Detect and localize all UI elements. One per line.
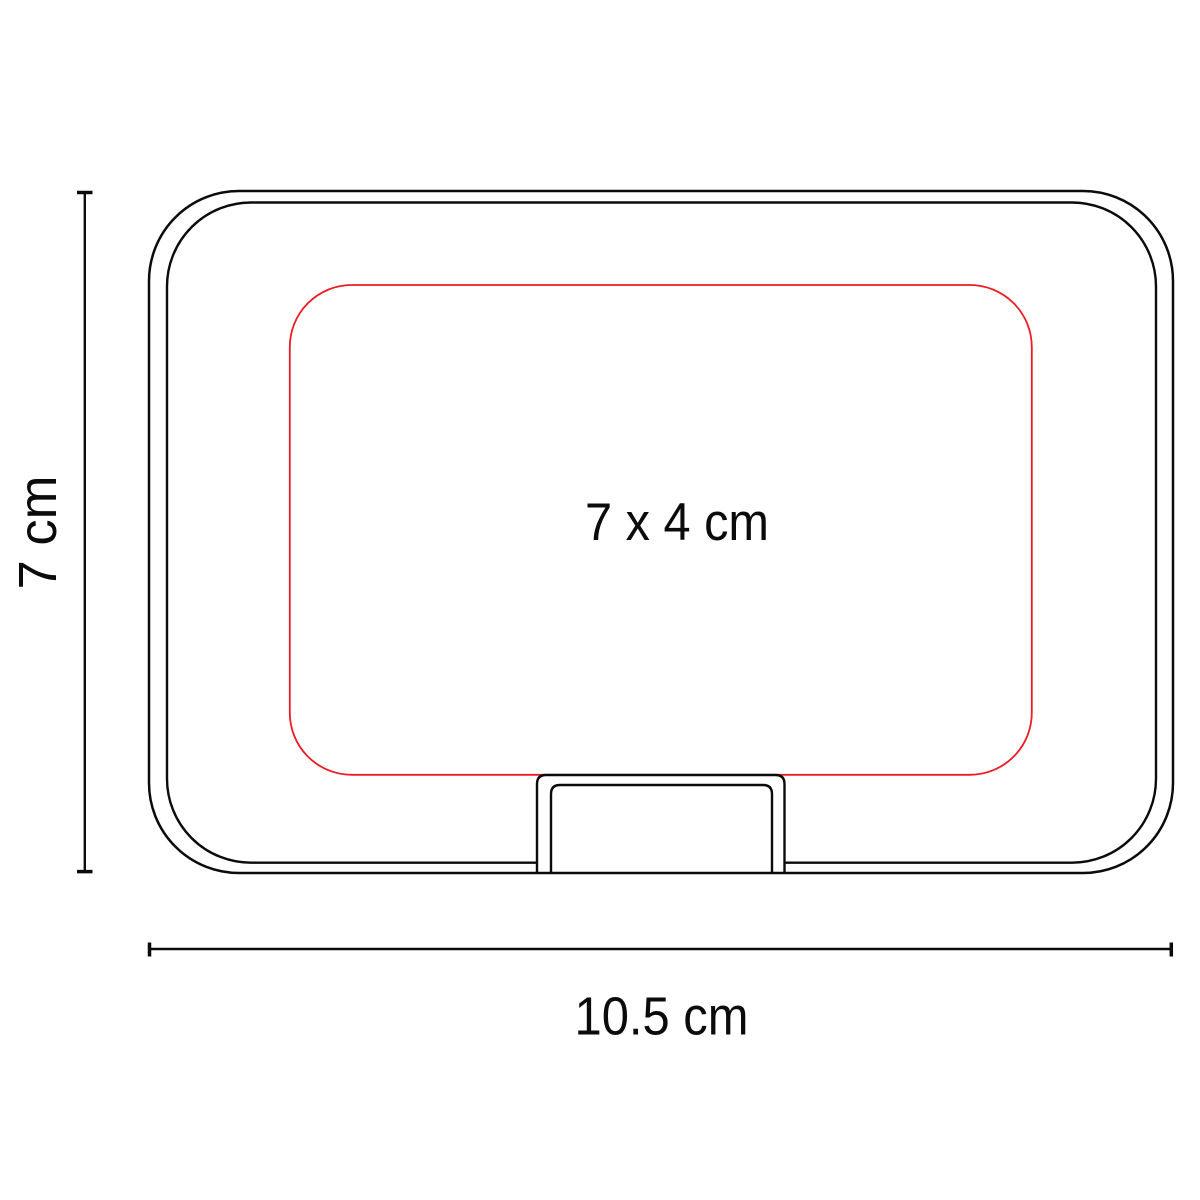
- svg-text:7 cm: 7 cm: [8, 476, 68, 590]
- svg-text:7 x 4 cm: 7 x 4 cm: [585, 493, 769, 552]
- svg-text:10.5 cm: 10.5 cm: [575, 987, 749, 1047]
